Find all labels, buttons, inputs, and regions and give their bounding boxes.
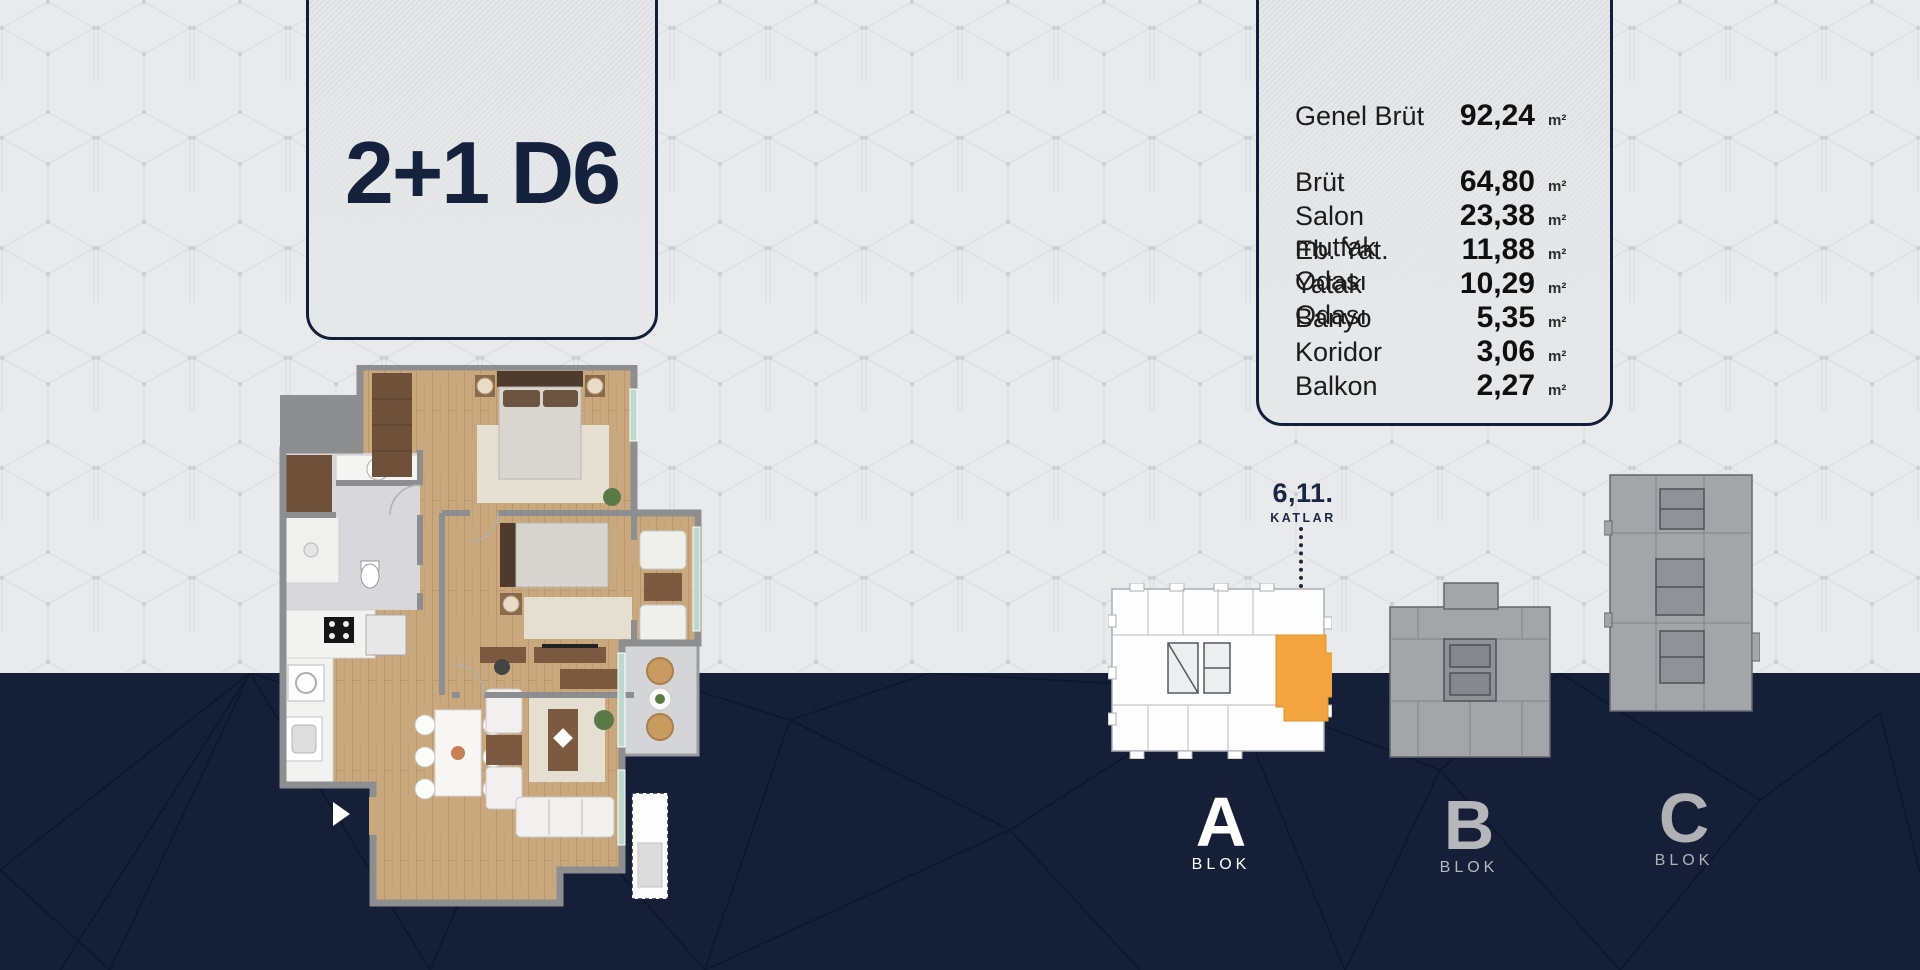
area-row-unit: m² — [1548, 178, 1584, 195]
area-row-label: Balkon — [1295, 371, 1431, 402]
area-row-unit: m² — [1548, 314, 1584, 331]
page: 2+1 D6 Genel Brüt 92,24 m² Brüt 64,80 m²… — [0, 0, 1920, 970]
area-row-value: 10,29 — [1431, 267, 1535, 301]
entrance-arrow-icon — [333, 802, 350, 826]
area-row: Eb. Yat. Odası 11,88 m² — [1295, 233, 1584, 267]
area-row: Balkon 2,27 m² — [1295, 369, 1584, 403]
area-row-value: 64,80 — [1431, 165, 1535, 199]
area-row-value: 3,06 — [1431, 335, 1535, 369]
area-row-value: 23,38 — [1431, 199, 1535, 233]
block-c-selector[interactable]: C BLOK — [1621, 788, 1747, 870]
highlighted-unit[interactable] — [1276, 635, 1332, 721]
area-row-label: Banyo — [1295, 303, 1431, 334]
block-b-label: BLOK — [1406, 859, 1532, 877]
area-row-unit: m² — [1548, 246, 1584, 263]
block-a-selector[interactable]: A BLOK — [1158, 792, 1284, 874]
apartment-floorplan — [272, 365, 702, 910]
block-c-plan[interactable] — [1604, 473, 1760, 713]
block-a-plan[interactable] — [1108, 583, 1332, 759]
area-row-label: Genel Brüt — [1295, 101, 1431, 132]
area-row-unit: m² — [1548, 280, 1584, 297]
block-c-letter: C — [1621, 788, 1747, 848]
area-row: Koridor 3,06 m² — [1295, 335, 1584, 369]
area-row: Brüt 64,80 m² — [1295, 165, 1584, 199]
unit-type-card: 2+1 D6 — [306, 0, 658, 340]
entry-opening — [369, 797, 377, 835]
sitting-nook — [640, 531, 686, 643]
floor-indicator: 6,11. KATLAR — [1245, 478, 1361, 525]
area-row-value: 5,35 — [1431, 301, 1535, 335]
entry-wall-mass — [280, 395, 360, 453]
area-row-value: 2,27 — [1431, 369, 1535, 403]
area-row: Banyo 5,35 m² — [1295, 301, 1584, 335]
area-row: Genel Brüt 92,24 m² — [1295, 99, 1584, 133]
area-row-value: 11,88 — [1431, 233, 1535, 267]
area-table: Genel Brüt 92,24 m² Brüt 64,80 m² Salon … — [1259, 0, 1610, 403]
area-row-unit: m² — [1548, 348, 1584, 365]
block-b-plan[interactable] — [1388, 581, 1554, 759]
block-b-selector[interactable]: B BLOK — [1406, 795, 1532, 877]
area-row-value: 92,24 — [1431, 99, 1535, 133]
floor-indicator-floors: 6,11. — [1245, 478, 1361, 509]
block-a-letter: A — [1158, 792, 1284, 852]
area-row-label: Brüt — [1295, 167, 1431, 198]
area-row-unit: m² — [1548, 112, 1584, 129]
block-a-label: BLOK — [1158, 856, 1284, 874]
area-row-label: Koridor — [1295, 337, 1431, 368]
block-b-letter: B — [1406, 795, 1532, 855]
area-row: Salon mutfak 23,38 m² — [1295, 199, 1584, 233]
floor-indicator-label: KATLAR — [1245, 511, 1361, 525]
area-row-unit: m² — [1548, 212, 1584, 229]
balcony — [622, 643, 698, 755]
area-row: Yatak Odası 10,29 m² — [1295, 267, 1584, 301]
area-row-unit: m² — [1548, 382, 1584, 399]
unit-type-title: 2+1 D6 — [345, 122, 619, 224]
block-c-label: BLOK — [1621, 852, 1747, 870]
area-table-card: Genel Brüt 92,24 m² Brüt 64,80 m² Salon … — [1256, 0, 1613, 426]
wardrobe — [632, 793, 668, 899]
